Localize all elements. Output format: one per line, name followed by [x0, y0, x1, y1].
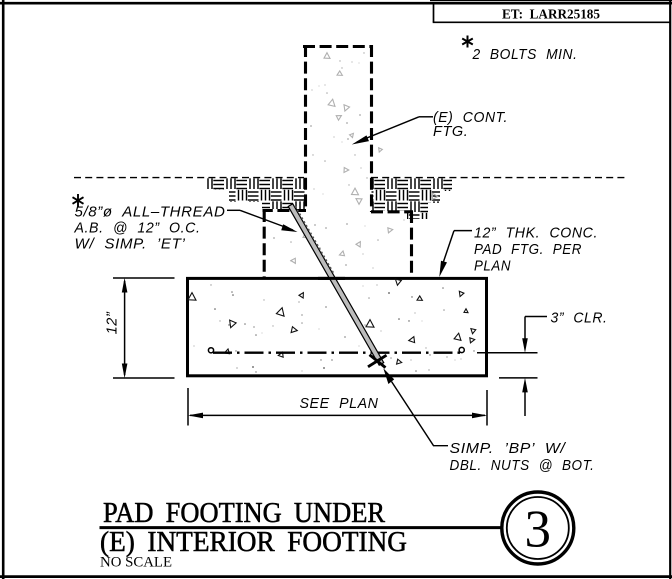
svg-text:12” THK. CONC.: 12” THK. CONC. [474, 226, 598, 242]
svg-text:FTG.: FTG. [433, 124, 468, 140]
svg-text:W/ SIMP. ’ET’: W/ SIMP. ’ET’ [75, 237, 186, 253]
svg-text:DBL. NUTS @ BOT.: DBL. NUTS @ BOT. [450, 458, 595, 474]
svg-text:PLAN: PLAN [474, 258, 511, 274]
svg-text:3: 3 [525, 501, 552, 559]
svg-text:SEE PLAN: SEE PLAN [300, 396, 379, 412]
svg-text:A.B. @ 12” O.C.: A.B. @ 12” O.C. [74, 221, 201, 237]
svg-text:ET: LARR25185: ET: LARR25185 [502, 7, 600, 22]
svg-text:NO SCALE: NO SCALE [100, 554, 172, 570]
svg-text:PAD FTG. PER: PAD FTG. PER [474, 242, 582, 258]
svg-text:12”: 12” [105, 311, 121, 334]
svg-text:5/8”ø ALL–THREAD: 5/8”ø ALL–THREAD [75, 204, 226, 220]
svg-text:SIMP. ’BP’ W/: SIMP. ’BP’ W/ [450, 441, 567, 457]
svg-text:3” CLR.: 3” CLR. [551, 310, 608, 326]
svg-text:2 BOLTS MIN.: 2 BOLTS MIN. [472, 47, 578, 63]
svg-text:PAD FOOTING UNDER: PAD FOOTING UNDER [103, 498, 385, 529]
